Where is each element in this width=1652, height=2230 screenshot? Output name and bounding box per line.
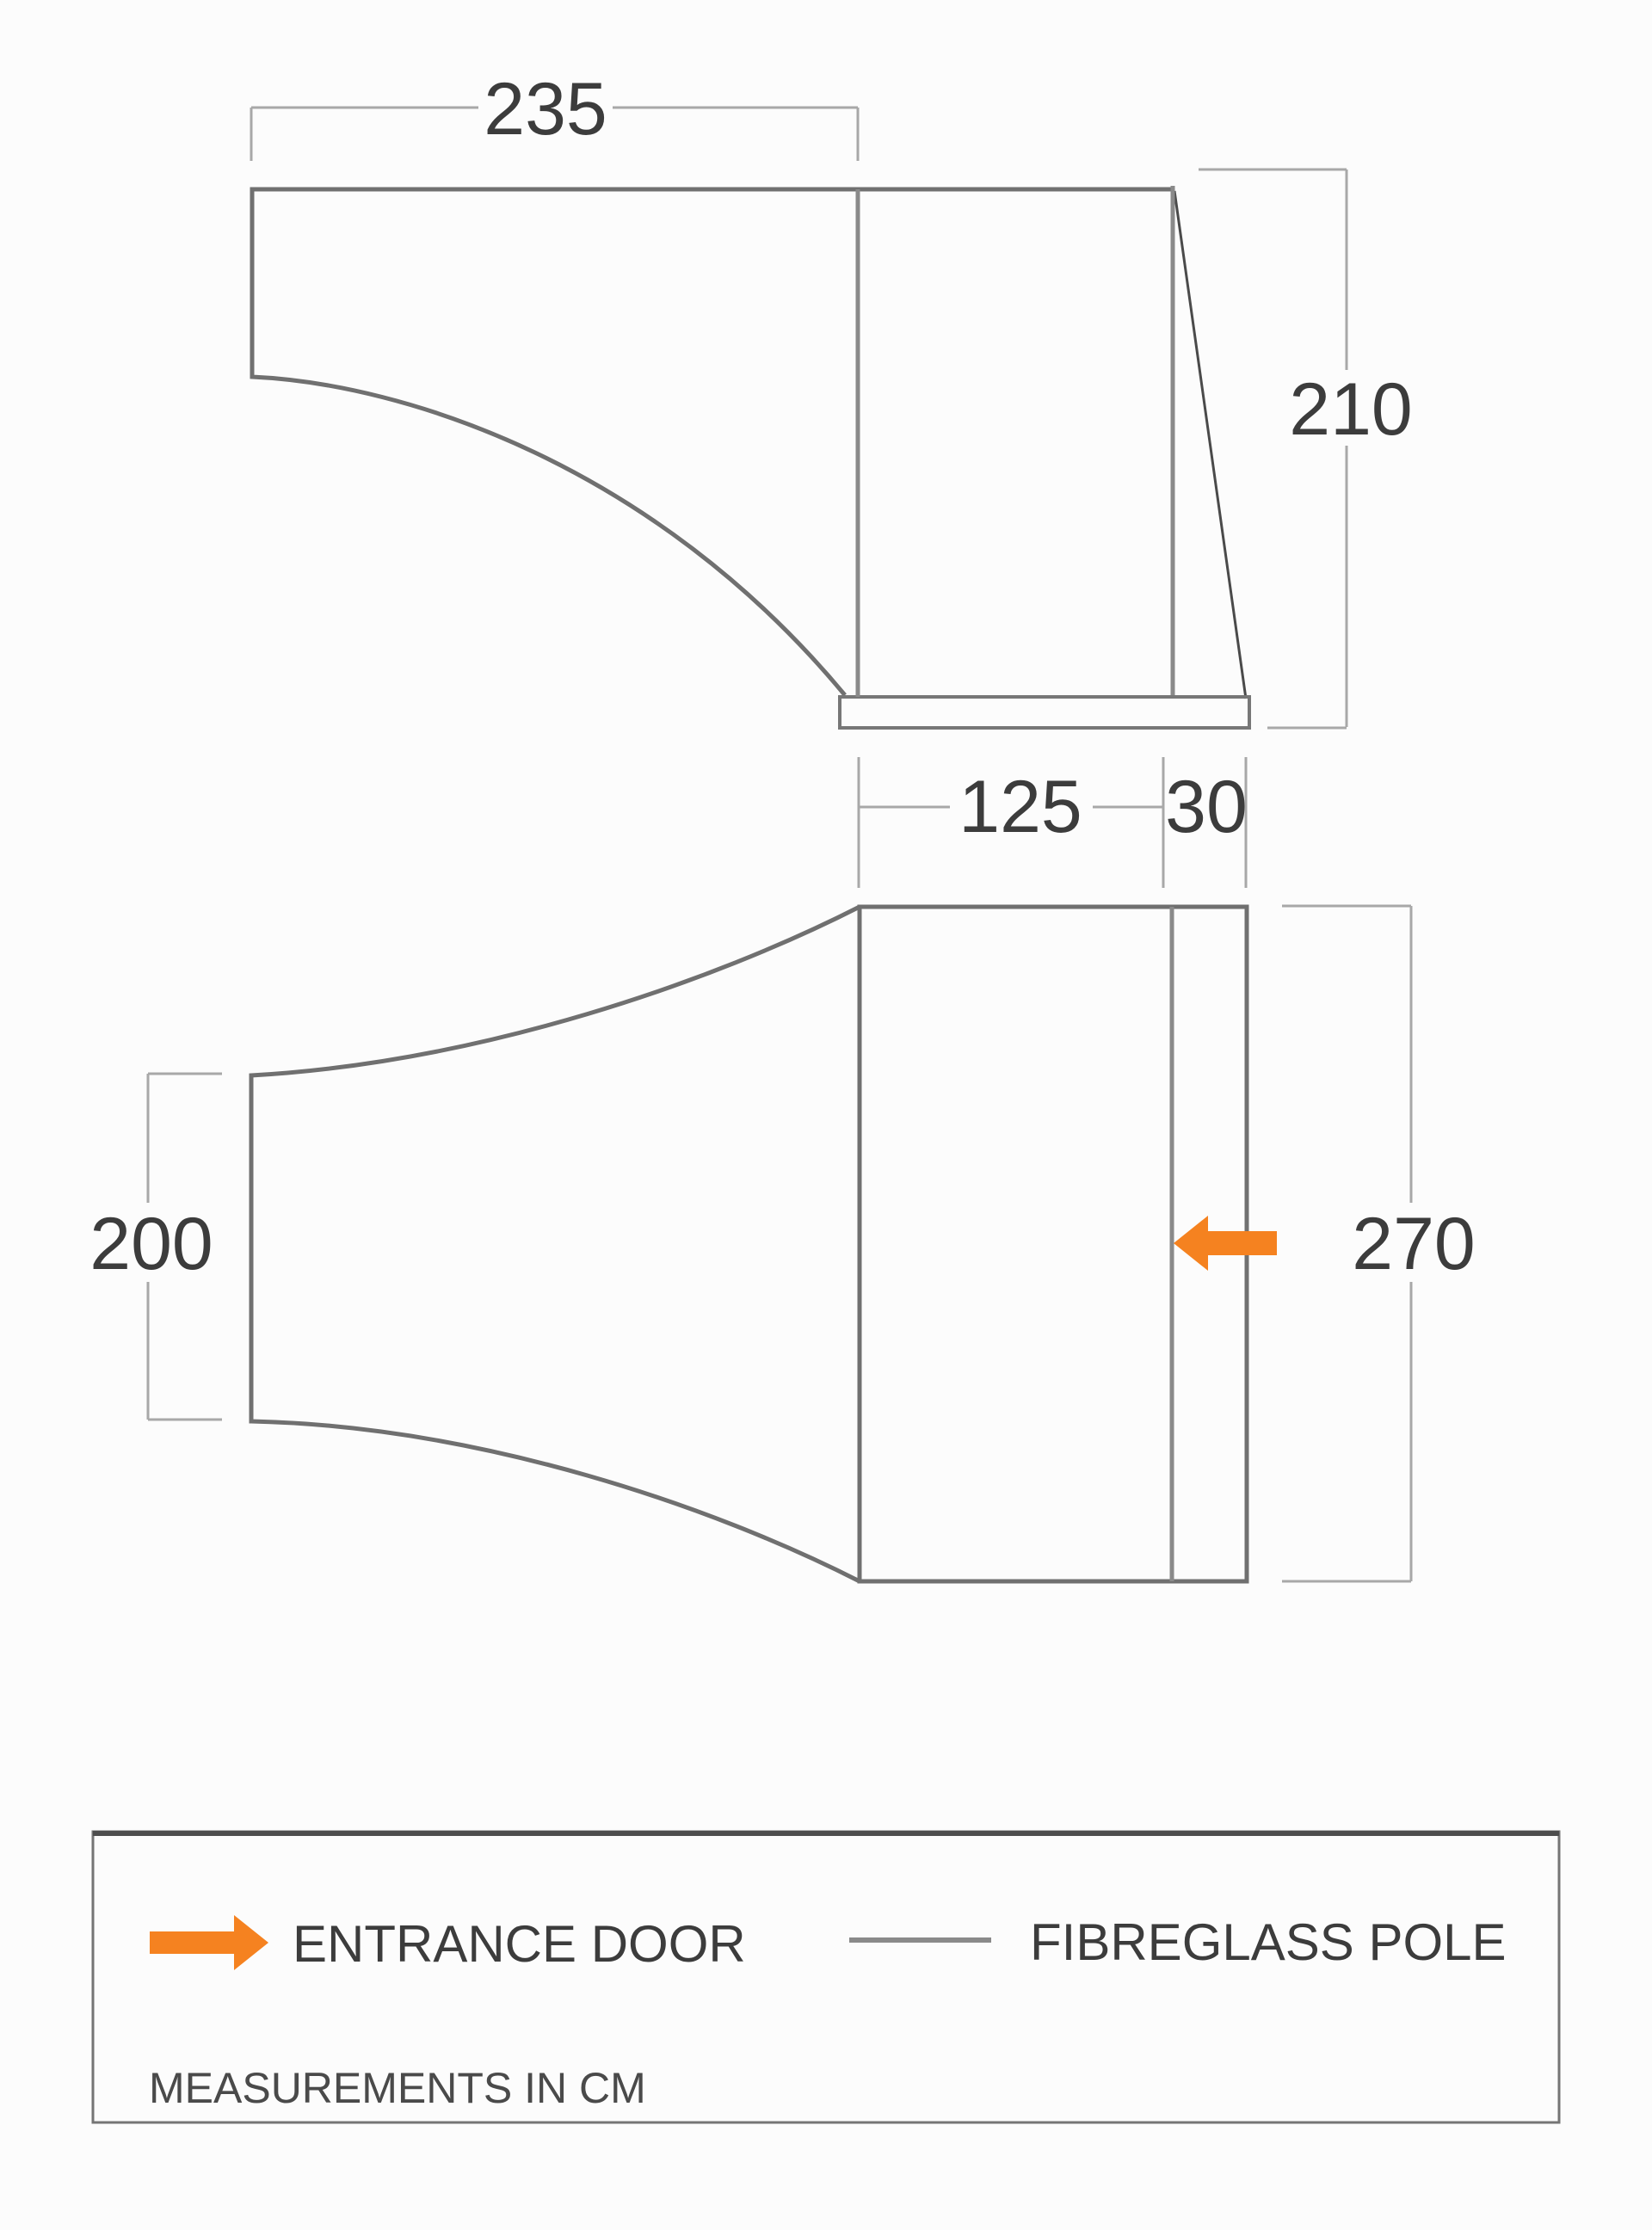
- dimension-30: 30: [1165, 757, 1248, 888]
- dimension-210: 210: [1199, 169, 1413, 728]
- dimension-label: 210: [1289, 368, 1413, 451]
- plan-view-outline: [251, 907, 860, 1581]
- dimension-label: 30: [1165, 766, 1248, 848]
- dimension-label: 235: [484, 68, 607, 151]
- legend-fibreglass-pole-label: FIBREGLASS POLE: [1030, 1913, 1507, 1971]
- plan-view: [251, 907, 1277, 1581]
- entrance-door-arrow-icon: [1174, 1216, 1277, 1271]
- dimension-label: 200: [89, 1203, 213, 1285]
- legend-measurements-note: MEASUREMENTS IN CM: [149, 2064, 646, 2112]
- tent-dimension-diagram: 235 210 125 30 200: [0, 0, 1652, 2230]
- dimension-label: 270: [1352, 1203, 1476, 1285]
- legend-entrance-door-label: ENTRANCE DOOR: [293, 1915, 746, 1973]
- dimension-125: 125: [859, 757, 1163, 888]
- dimension-label: 125: [959, 766, 1082, 848]
- dimension-200: 200: [89, 1074, 222, 1420]
- side-view-base-bar: [840, 697, 1249, 728]
- side-view-front-edge: [1174, 191, 1246, 699]
- dimension-235: 235: [251, 68, 858, 161]
- side-view: [252, 186, 1249, 728]
- side-view-outline: [252, 189, 1174, 695]
- entrance-door-arrow-icon: [150, 1915, 268, 1970]
- dimension-270: 270: [1282, 906, 1476, 1581]
- legend: ENTRANCE DOOR FIBREGLASS POLE MEASUREMEN…: [93, 1832, 1559, 2122]
